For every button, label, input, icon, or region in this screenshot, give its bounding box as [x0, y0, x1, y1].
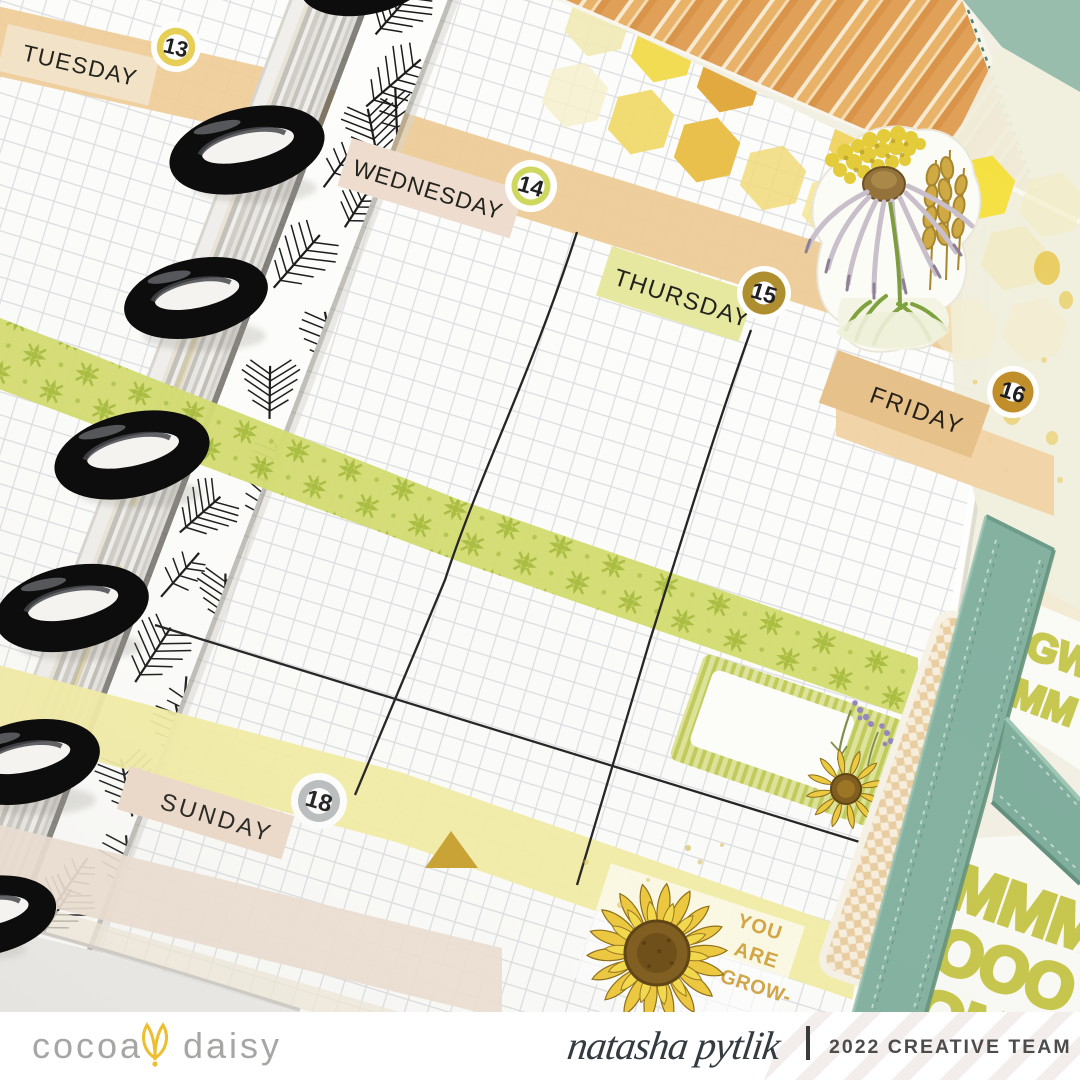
svg-text:natasha pytlik: natasha pytlik [565, 1023, 785, 1068]
svg-text:2022 CREATIVE TEAM: 2022 CREATIVE TEAM [829, 1036, 1072, 1058]
svg-text:daisy: daisy [183, 1025, 282, 1066]
svg-text:cocoa: cocoa [32, 1025, 143, 1066]
